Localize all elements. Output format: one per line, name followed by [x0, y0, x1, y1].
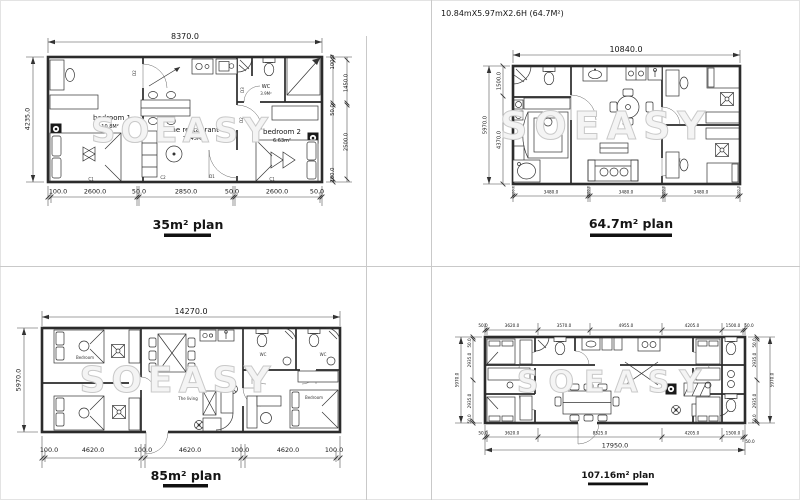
plan-35-title-block: 35m² plan: [153, 217, 224, 237]
p35-dim-b2: 50.0: [132, 188, 146, 196]
slope-arrow: [149, 67, 180, 86]
p64-watermark: SOEASY: [500, 104, 712, 148]
bed-right-bottom: [696, 397, 720, 422]
p64-dim-b100c: 100.0: [662, 185, 666, 196]
desk: [50, 60, 75, 90]
kitchen-counter: [626, 67, 662, 80]
p107-dim-l1: 2935.0: [467, 352, 472, 367]
desk-top: [666, 70, 688, 96]
p107-dim-l3: 50.0: [467, 414, 472, 424]
p85-dim-b5: 4620.0: [277, 446, 299, 454]
wardrobe-l1: [520, 340, 532, 364]
wardrobe-right: [298, 371, 338, 382]
p107-dim-t3: 4955.0: [619, 323, 634, 328]
p35-dim-b4: 50.0: [225, 188, 239, 196]
p85-dim-b6: 100.0: [325, 446, 343, 454]
stove: [200, 330, 216, 341]
wardrobe: [50, 95, 98, 109]
p85-title: 85m² plan: [151, 468, 222, 483]
shower-icon: [238, 58, 252, 72]
plan-35-group: 8370.0 4235.0 100.0 1450.0 50.0 2500.0 1…: [24, 32, 353, 237]
floorplan-sheet: 8370.0 4235.0 100.0 1450.0 50.0 2500.0 1…: [0, 0, 800, 500]
bed-bottom: [707, 163, 739, 183]
p35-watermark: SOEASY: [91, 111, 273, 151]
sofa: [588, 160, 638, 181]
bed-bottom-left: [54, 396, 104, 430]
toilet-icon-2: [308, 329, 320, 347]
p35-dim-b0: 100.0: [49, 188, 67, 196]
p85-dim-b3: 4620.0: [179, 446, 201, 454]
shower-icon: [513, 66, 531, 84]
p64-header: 10.84mX5.97mX2.6H (64.7M²): [441, 9, 564, 18]
bed-top: [707, 67, 739, 88]
plan-85-group: 14270.0 5970.0 100.0 4620.0 100.0 4620.0…: [15, 307, 344, 488]
p107-dim-b2: 8525.0: [593, 431, 608, 436]
wardrobe-bottom: [129, 398, 140, 430]
floorplans-canvas: 8370.0 4235.0 100.0 1450.0 50.0 2500.0 1…: [0, 0, 800, 500]
p107-dim-t2: 3570.0: [557, 323, 572, 328]
wc2-fixtures: [308, 328, 340, 365]
p35-door-c1a: C1: [88, 177, 94, 182]
p107-title: 107.16m² plan: [581, 471, 654, 481]
bed-left-top: [487, 339, 515, 364]
p64-dim-b3: 3480.0: [619, 190, 634, 195]
fan-icon-2: [195, 421, 204, 430]
p107-dim-b5: 50.0: [745, 439, 755, 444]
p107-dim-r0: 50.0: [752, 338, 757, 348]
stove: [192, 59, 213, 74]
p35-dim-b3: 2850.0: [175, 188, 197, 196]
toilet-icon-2: [725, 337, 737, 355]
p107-dim-r2: 2935.0: [752, 393, 757, 408]
p35-dim-b5: 2600.0: [266, 188, 288, 196]
p35-dim-r1: 1450.0: [344, 74, 350, 92]
p85-room-wc1: WC: [260, 352, 267, 357]
p35-door-d3: D3: [240, 87, 245, 93]
p107-dim-l2: 2935.0: [467, 393, 472, 408]
p35-dim-r4: 100.0: [330, 168, 336, 183]
p35-dim-r2: 50.0: [330, 104, 336, 116]
p85-watermark: SOEASY: [80, 360, 277, 401]
p35-area-bedroom2: 6.63m²: [273, 138, 291, 144]
toilet-icon: [263, 58, 275, 76]
desk-bottom: [666, 152, 688, 178]
bathroom-sink: [583, 67, 607, 81]
plan-85-title-block: 85m² plan: [151, 468, 222, 488]
p35-dim-left: 4235.0: [24, 108, 32, 130]
toilet-icon-3: [725, 394, 737, 412]
p35-dim-top: 8370.0: [171, 32, 199, 41]
wardrobe-top: [129, 330, 140, 363]
p64-dim-left-outer: 5970.0: [483, 116, 489, 134]
p85-dim-b1: 4620.0: [82, 446, 104, 454]
p107-dim-t0: 50.0: [478, 323, 488, 328]
toilet-icon: [543, 67, 555, 85]
p35-door-c2: C2: [160, 175, 166, 180]
bed-corner: [287, 58, 320, 95]
wc-right-fixtures: [725, 337, 737, 412]
p35-dim-b6: 50.0: [310, 188, 324, 196]
p107-dim-t5: 1500.0: [726, 323, 741, 328]
p64-dim-b100d: 100.0: [737, 185, 741, 196]
p35-dim-r0: 100.0: [330, 55, 336, 70]
p107-dim-b4: 1500.0: [726, 431, 741, 436]
plan-107-title-block: 107.16m² plan: [581, 471, 654, 485]
toilet-icon: [256, 329, 268, 347]
toilet-icon: [554, 337, 566, 355]
p107-dim-right-outer: 5970.0: [770, 372, 775, 387]
bathtub: [513, 160, 540, 182]
chair-icon: [721, 93, 734, 106]
p64-dim-b100a: 100.0: [512, 185, 516, 196]
bed-right-top: [696, 339, 720, 364]
wardrobe-2: [272, 106, 318, 120]
p107-dim-total: 17950.0: [602, 442, 628, 450]
chair-icon-2: [716, 144, 729, 157]
plan-64-group: 10.84mX5.97mX2.6H (64.7M²): [441, 9, 742, 237]
p35-room-wc: WC: [262, 84, 271, 90]
bed-left-bottom: [487, 397, 515, 422]
chair-icon: [112, 345, 125, 358]
p85-dim-top: 14270.0: [174, 307, 207, 316]
p107-dim-b0: 50.0: [478, 431, 488, 436]
fan-icon: [672, 406, 681, 415]
p35-door-d1: D1: [209, 174, 215, 179]
p107-dim-b3: 4205.0: [685, 431, 700, 436]
p64-title: 64.7m² plan: [589, 216, 673, 231]
p85-dim-b4: 100.0: [231, 446, 249, 454]
p107-dim-r1: 2935.0: [752, 352, 757, 367]
p64-dim-b100b: 100.0: [587, 185, 591, 196]
p107-dim-r3: 50.0: [752, 414, 757, 424]
p107-dim-left-outer: 5970.0: [455, 372, 460, 387]
p64-dim-l0: 1500.0: [497, 72, 503, 90]
p107-dim-t1: 3620.0: [505, 323, 520, 328]
chair-icon-2: [113, 406, 126, 419]
plan-107-group: 50.0 3620.0 3570.0 4955.0 4205.0 1500.0 …: [455, 323, 776, 485]
kitchen-sink: [216, 59, 237, 74]
p107-dim-b1: 3620.0: [505, 431, 520, 436]
p85-dim-b2: 100.0: [134, 446, 152, 454]
p35-door-c1b: C1: [269, 177, 275, 182]
plan-64-title-block: 64.7m² plan: [589, 216, 673, 237]
p64-dim-b1: 3480.0: [544, 190, 559, 195]
panel-dividers: [0, 0, 800, 500]
p35-area-wc: 3.9M²: [260, 91, 272, 96]
kitchen-sink: [218, 330, 234, 341]
p35-dim-r3: 2500.0: [344, 133, 350, 151]
p107-dim-l0: 50.0: [467, 338, 472, 348]
p35-dim-b1: 2600.0: [84, 188, 106, 196]
p107-dim-t6: 50.0: [744, 323, 754, 328]
p35-title: 35m² plan: [153, 217, 224, 232]
p85-dim-b0: 100.0: [40, 446, 58, 454]
p35-door-d2a: D2: [132, 70, 137, 76]
p107-dim-t4: 4205.0: [685, 323, 700, 328]
p107-watermark: SOEASY: [517, 365, 711, 400]
bath-fixtures: [535, 337, 566, 355]
p85-room-bedroom-r: Bedroom: [305, 395, 323, 400]
p64-dim-b5: 3480.0: [694, 190, 709, 195]
kitchen-counter: [582, 338, 660, 351]
p85-room-wc2: WC: [320, 352, 327, 357]
p64-dim-top: 10840.0: [609, 45, 642, 54]
p85-dim-left: 5970.0: [15, 369, 23, 391]
